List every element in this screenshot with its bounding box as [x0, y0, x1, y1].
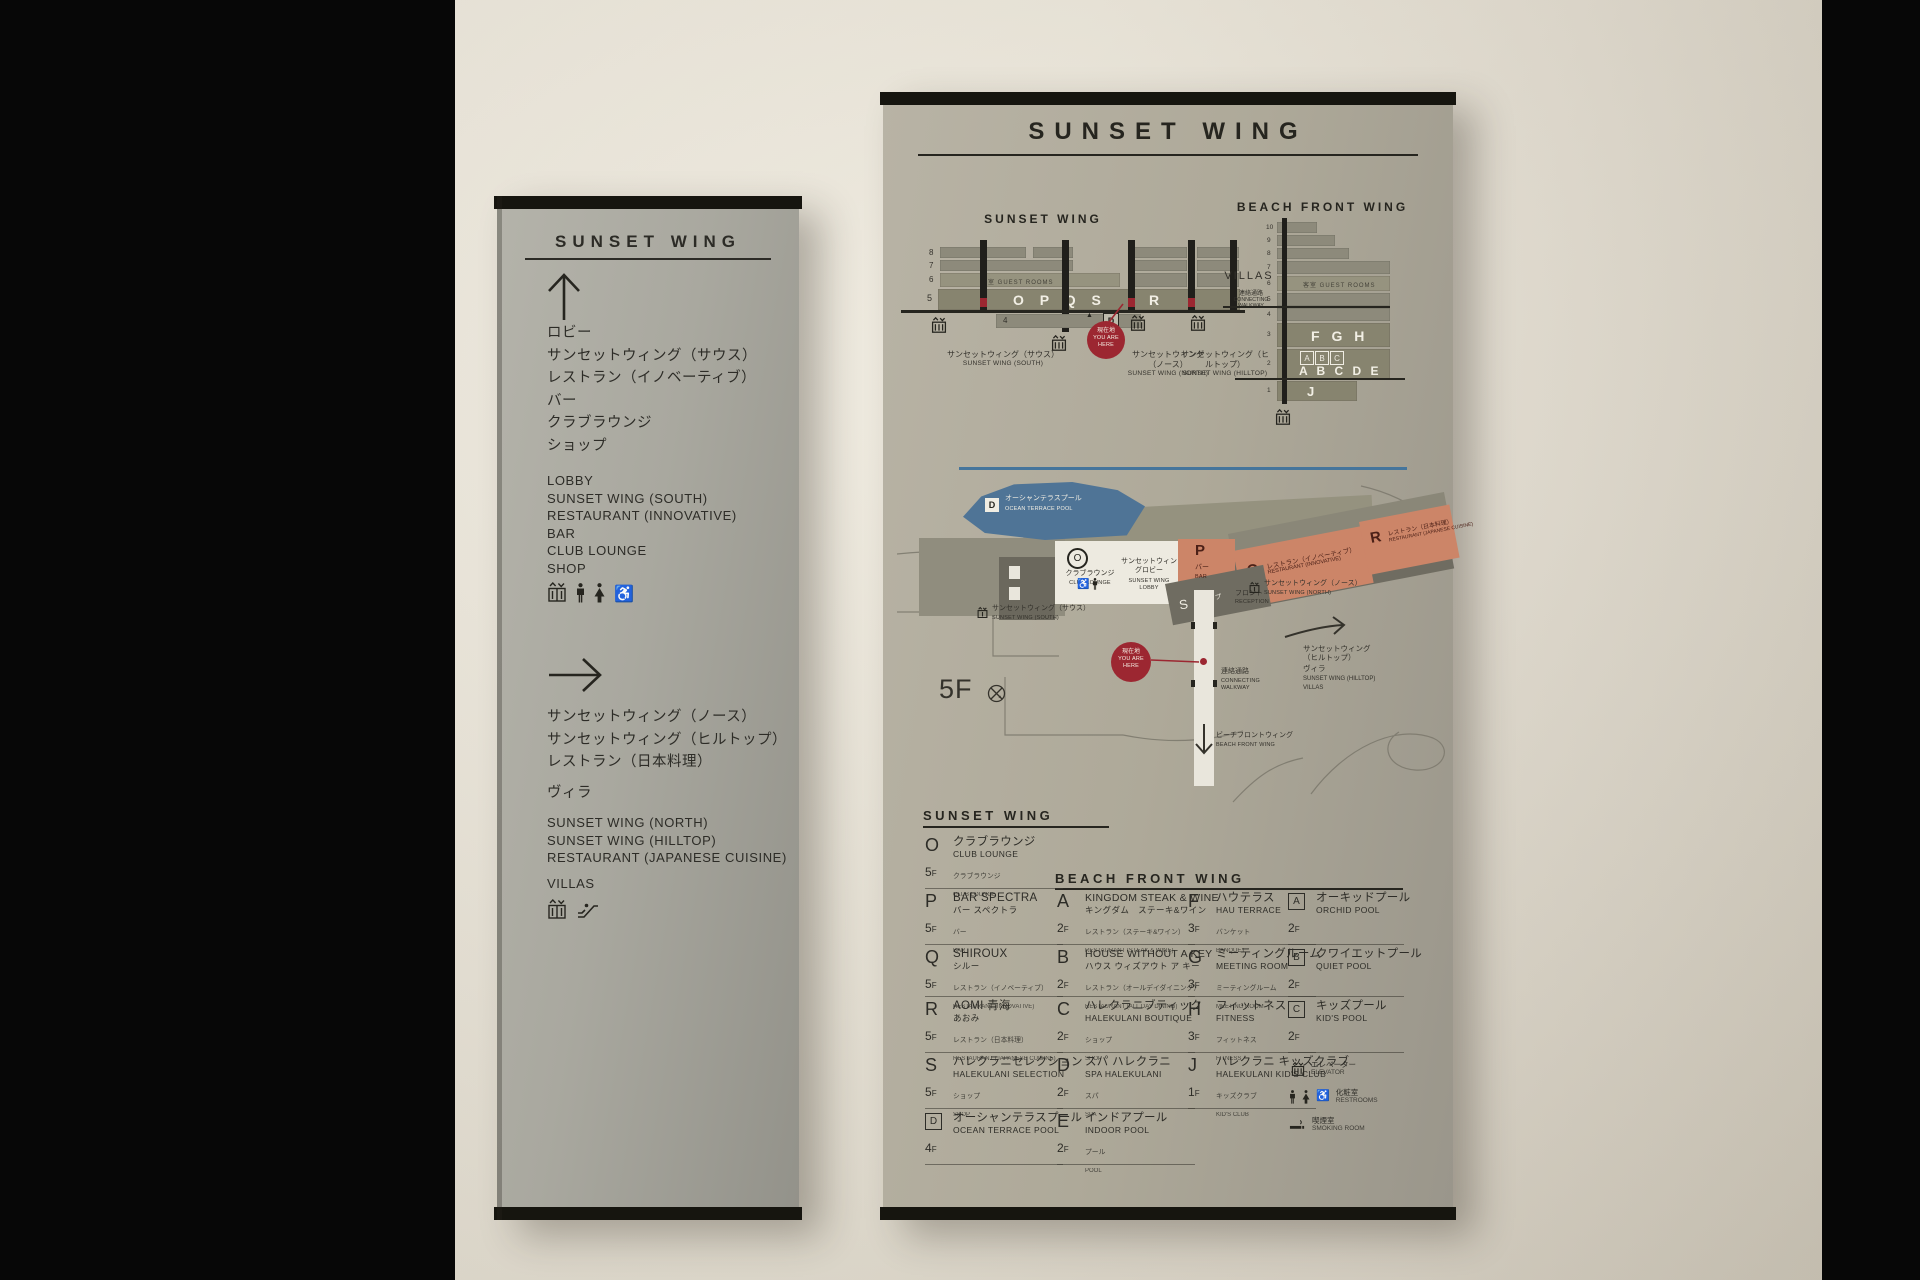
row-divider [925, 1164, 1063, 1165]
list-item: ショップ [547, 435, 757, 458]
panel-bottom-rail [880, 1207, 1456, 1220]
arrow-right-icon [547, 654, 603, 696]
man-icon [576, 583, 585, 603]
list-item: レストラン（日本料理） [547, 751, 787, 774]
row-category-jp: キッズクラブ [1216, 1093, 1257, 1100]
elevation-floor-bar [1129, 273, 1187, 287]
floor-suffix: F [932, 869, 937, 878]
directory-title-rule [923, 826, 1109, 828]
bfw-floor-bar [1277, 308, 1390, 321]
row-floor: 2 [1057, 1085, 1064, 1099]
panel-left-edge [497, 196, 502, 1220]
you-are-here-jp: 現在地 [1111, 642, 1151, 656]
row-subname: KID'S POOL [1316, 1013, 1406, 1024]
you-are-here-en: HERE [1087, 342, 1125, 349]
destination-list-en-right: SUNSET WING (NORTH) SUNSET WING (HILLTOP… [547, 814, 787, 892]
row-category-jp: クラブラウンジ [953, 873, 1001, 880]
row-name: キッズプール [1316, 1000, 1406, 1013]
band-letters-opqs: O P Q S [1013, 292, 1107, 308]
floor-suffix: F [932, 925, 937, 934]
pool-box-c: C [1330, 351, 1344, 365]
elevator-icon [1275, 408, 1291, 426]
elevator-icon [1130, 314, 1146, 332]
walkway-door-mark [1213, 622, 1217, 629]
row-subname: QUIET POOL [1316, 961, 1422, 972]
title-underline [525, 258, 771, 260]
row-letter-boxed: A [1288, 893, 1305, 910]
row-floor: 4 [925, 1141, 932, 1155]
row-category-jp: レストラン（オールデイダイニング） [1085, 985, 1200, 992]
floor-number: 6 [929, 275, 933, 284]
directory-row: A オーキッドプール ORCHID POOL 2F [1288, 892, 1406, 935]
bar-label-en: BAR [1195, 574, 1207, 581]
floor-suffix: F [1295, 925, 1300, 934]
floor-number: 7 [1267, 264, 1271, 271]
label-en: SUNSET WING (SOUTH) [945, 360, 1061, 368]
row-floor: 2 [1057, 921, 1064, 935]
floor-number: 9 [1267, 237, 1271, 244]
list-item: ヴィラ [547, 782, 787, 805]
list-item: レストラン（イノベーティブ） [547, 367, 757, 390]
row-subname: あおみ [953, 1013, 1065, 1024]
row-category-jp: ミーティングルーム [1216, 985, 1277, 992]
legend-smoking: 喫煙室 SMOKING ROOM [1289, 1116, 1365, 1133]
guest-rooms-label: 客室 GUEST ROOMS [981, 277, 1054, 286]
elevator-icon [547, 581, 567, 603]
legend-label-en: SMOKING ROOM [1312, 1125, 1365, 1133]
map-north-jp: サンセットウィング（ノース） [1264, 580, 1362, 589]
floor-suffix: F [932, 1033, 937, 1042]
row-name: ハレクラニブティック [1085, 1000, 1202, 1013]
smoking-icon [1289, 1119, 1306, 1131]
elevator-icon [931, 316, 947, 334]
row-name: BAR SPECTRA [953, 892, 1065, 905]
ground-line [901, 310, 1245, 313]
row-category-jp: ショップ [953, 1093, 980, 1100]
map-hilltop-en: SUNSET WING (HILLTOP) [1303, 676, 1383, 684]
label-sunset-wing-hilltop: サンセットウィング（ヒルトップ） SUNSET WING (HILLTOP) [1179, 350, 1271, 378]
arrow-up-icon [547, 272, 599, 322]
directory-row: D オーシャンテラスプール OCEAN TERRACE POOL 4F [925, 1112, 1065, 1155]
row-floor: 5 [925, 865, 932, 879]
floor-number: 4 [1267, 311, 1271, 318]
elevator-door [1009, 587, 1020, 600]
row-floor: 5 [925, 1085, 932, 1099]
row-floor: 2 [1057, 977, 1064, 991]
reception-label-en: RECEPTION [1235, 599, 1269, 606]
row-name: クラブラウンジ [953, 836, 1065, 849]
row-floor: 2 [1288, 1029, 1295, 1043]
row-letter-boxed: C [1288, 1001, 1305, 1018]
floor-number: 3 [1267, 331, 1271, 338]
amenity-icons-row: ♿ [547, 581, 634, 603]
list-item: SUNSET WING (SOUTH) [547, 490, 737, 508]
floor-suffix: F [932, 1089, 937, 1098]
map-connecting-en: CONNECTING WALKWAY [1221, 678, 1283, 692]
list-item: SHOP [547, 560, 737, 578]
left-panel-title: SUNSET WING [497, 232, 799, 252]
row-floor: 1 [1188, 1085, 1195, 1099]
pool-label-jp: オーシャンテラスプール [1005, 495, 1082, 504]
legend-label-jp: エレベーター [1311, 1060, 1356, 1069]
map-beachfront-en: BEACH FRONT WING [1216, 742, 1275, 749]
destination-list-jp-right: サンセットウィング（ノース） サンセットウィング（ヒルトップ） レストラン（日本… [547, 706, 787, 804]
row-subname: バー スペクトラ [953, 905, 1065, 916]
block-letter-p: P [1195, 542, 1205, 559]
list-item: サンセットウィング（ヒルトップ） [547, 729, 787, 752]
map-beachfront-jp: ビーチフロントウィング [1216, 732, 1293, 741]
floor-number: 8 [929, 248, 933, 257]
panel-bottom-rail [494, 1207, 802, 1220]
row-category-jp: レストラン（ステーキ&ワイン） [1085, 929, 1185, 936]
destination-list-jp-ahead: ロビー サンセットウィング（サウス） レストラン（イノベーティブ） バー クラブ… [547, 322, 757, 457]
row-subname: CLUB LOUNGE [953, 849, 1065, 860]
elevation-floor-bar [1129, 247, 1187, 258]
directory-row: E インドアプール INDOOR POOL 2F プール POOL [1057, 1112, 1197, 1177]
row-name: クワイエットプール [1316, 948, 1422, 961]
elevator-shaft [1282, 218, 1287, 404]
floor-number: 6 [1267, 280, 1271, 287]
row-floor: 2 [1288, 921, 1295, 935]
floor-number: 10 [1266, 224, 1273, 231]
floor-number: 2 [1267, 360, 1271, 367]
pool-box-b: B [1315, 351, 1329, 365]
list-item: ロビー [547, 322, 757, 345]
row-name: AOMI 青海 [953, 1000, 1065, 1013]
compass-icon [987, 684, 1006, 703]
legend-restrooms: ♿ 化粧室 RESTROOMS [1289, 1088, 1378, 1105]
map-hilltop-block: サンセットウィング（ヒルトップ） ヴィラ SUNSET WING (HILLTO… [1303, 644, 1383, 692]
elevator-door [1009, 566, 1020, 579]
legend-label-en: ELEVATOR [1311, 1069, 1356, 1077]
list-item: サンセットウィング（ノース） [547, 706, 787, 729]
row-subname: SPA HALEKULANI [1085, 1069, 1197, 1080]
map-south-en: SUNSET WING (SOUTH) [992, 615, 1059, 622]
you-are-here-en: HERE [1111, 663, 1151, 670]
list-item: VILLAS [547, 875, 787, 893]
elevation-floor-bar [1129, 260, 1187, 271]
right-panel-title: SUNSET WING [883, 118, 1453, 146]
block-letter-s: S [1178, 596, 1189, 612]
walkway-door-mark [1191, 680, 1195, 687]
row-subname: HALEKULANI BOUTIQUE [1085, 1013, 1202, 1024]
row-name: オーキッドプール [1316, 892, 1410, 905]
blue-divider-line [959, 467, 1407, 470]
map-north-en: SUNSET WING (NORTH) [1264, 590, 1331, 597]
walkway-level-line [1223, 306, 1390, 308]
directory-beachfront-title: BEACH FRONT WING [1055, 871, 1245, 886]
floor-indicator-5f: 5F [939, 674, 973, 705]
label-jp: サンセットウィング（ヒルトップ） [1179, 350, 1271, 370]
destination-list-en-ahead: LOBBY SUNSET WING (SOUTH) RESTAURANT (IN… [547, 472, 737, 577]
row-name: スパ ハレクラニ [1085, 1056, 1197, 1069]
map-villa-en: VILLAS [1303, 685, 1383, 693]
panel-top-rail [880, 92, 1456, 105]
map-villa-jp: ヴィラ [1303, 664, 1383, 673]
floor-suffix: F [1064, 1033, 1069, 1042]
map-amenity-icons: ♿ [1077, 578, 1098, 590]
list-item: バー [547, 390, 757, 413]
right-map-panel: SUNSET WING SUNSET WING BEACH FRONT WING… [883, 92, 1453, 1220]
row-floor: 3 [1188, 1029, 1195, 1043]
row-category-en: POOL [1085, 1168, 1102, 1174]
list-item: CLUB LOUNGE [547, 542, 737, 560]
bar-label-jp: バー [1195, 564, 1209, 573]
row-letter-boxed: D [925, 1113, 942, 1130]
floor-suffix: F [1064, 981, 1069, 990]
floor-number: 5 [927, 293, 932, 303]
row-category-jp: スパ [1085, 1093, 1099, 1100]
title-underline [918, 154, 1418, 156]
floor-number: 1 [1267, 387, 1271, 394]
floor-suffix: F [1295, 981, 1300, 990]
man-icon [1092, 578, 1098, 590]
floor-suffix: F [1064, 1145, 1069, 1154]
band-letter-j: J [1307, 384, 1320, 399]
row-name: インドアプール [1085, 1112, 1197, 1125]
you-are-here-jp: 現在地 [1087, 321, 1125, 335]
floor-number: 4 [1003, 316, 1007, 325]
floor-suffix: F [1195, 1033, 1200, 1042]
row-floor: 2 [1057, 1029, 1064, 1043]
legend-label-jp: 化粧室 [1336, 1088, 1378, 1097]
man-icon [1289, 1090, 1296, 1104]
list-item: サンセットウィング（サウス） [547, 345, 757, 368]
band-letters-abcde: A B C D E [1299, 364, 1382, 378]
list-item: SUNSET WING (NORTH) [547, 814, 787, 832]
map-connecting-jp: 連絡通路 [1221, 668, 1249, 677]
row-subname: ORCHID POOL [1316, 905, 1410, 916]
floor-suffix: F [1064, 1089, 1069, 1098]
map-south-jp: サンセットウィング（サウス） [992, 605, 1090, 614]
panel-top-rail [494, 196, 802, 209]
row-subname: シルー [953, 961, 1065, 972]
elevator-icon [977, 606, 988, 619]
row-floor: 2 [1288, 977, 1295, 991]
floor-suffix: F [1064, 925, 1069, 934]
directory-row: B クワイエットプール QUIET POOL 2F [1288, 948, 1406, 991]
bfw-floor-bar [1277, 248, 1349, 259]
directory-title-rule [1055, 888, 1403, 890]
row-name: SHIROUX [953, 948, 1065, 961]
guest-rooms-label: 客室 GUEST ROOMS [1303, 280, 1376, 289]
map-hilltop-jp: サンセットウィング（ヒルトップ） [1303, 644, 1383, 662]
elevation-sunset-wing-title: SUNSET WING [978, 212, 1108, 226]
position-pointer-triangle: ▲ [1086, 312, 1093, 319]
bfw-floor-bar [1277, 261, 1390, 274]
legend-label-en: RESTROOMS [1336, 1097, 1378, 1105]
elevator-icon [1249, 581, 1260, 594]
woman-icon [594, 583, 605, 603]
connecting-walkway-path [1194, 590, 1214, 786]
row-floor: 5 [925, 1029, 932, 1043]
list-item: SUNSET WING (HILLTOP) [547, 832, 787, 850]
elevator-icon [547, 898, 567, 920]
you-are-here-badge: 現在地 YOU ARE HERE [1111, 642, 1151, 682]
row-floor: 3 [1188, 921, 1195, 935]
row-floor: 3 [1188, 977, 1195, 991]
floor-suffix: F [1195, 981, 1200, 990]
lower-level-line [1235, 378, 1405, 380]
woman-icon [1302, 1090, 1310, 1104]
row-floor: 2 [1057, 1141, 1064, 1155]
floor-suffix: F [1195, 1089, 1200, 1098]
list-item: クラブラウンジ [547, 412, 757, 435]
label-jp: サンセットウィング（サウス） [945, 350, 1061, 360]
wheelchair-icon: ♿ [1077, 580, 1089, 590]
floor-number: 8 [1267, 250, 1271, 257]
elevation-beachfront-title: BEACH FRONT WING [1235, 200, 1410, 214]
row-floor: 5 [925, 977, 932, 991]
floor-suffix: F [1295, 1033, 1300, 1042]
floor-number: 5 [1267, 296, 1271, 303]
club-lounge-circle-o: O [1067, 548, 1088, 569]
shaft-red-mark [1188, 298, 1195, 307]
lobby-label-en: SUNSET WING LOBBY [1121, 578, 1177, 592]
list-item: LOBBY [547, 472, 737, 490]
shaft-red-mark [1128, 298, 1135, 307]
pool-box-d: D [985, 498, 999, 512]
row-letter-boxed: B [1288, 949, 1305, 966]
row-floor: 5 [925, 921, 932, 935]
row-subname: INDOOR POOL [1085, 1125, 1197, 1136]
pool-box-a: A [1300, 351, 1314, 365]
pool-label-en: OCEAN TERRACE POOL [1005, 506, 1073, 513]
floor-number: 7 [929, 261, 933, 270]
row-category-jp: レストラン（イノベーティブ） [953, 985, 1048, 992]
left-sign-panel: SUNSET WING ロビー サンセットウィング（サウス） レストラン（イノベ… [497, 196, 799, 1220]
floor-suffix: F [1195, 925, 1200, 934]
label-sunset-wing-south: サンセットウィング（サウス） SUNSET WING (SOUTH) [945, 350, 1061, 368]
row-category-jp: フィットネス [1216, 1037, 1257, 1044]
floor-suffix: F [932, 1145, 937, 1154]
row-category-jp: バンケット [1216, 929, 1250, 936]
list-item: RESTAURANT (INNOVATIVE) [547, 507, 737, 525]
band-letters-fgh: F G H [1311, 328, 1368, 344]
legend-elevator: エレベーター ELEVATOR [1291, 1060, 1356, 1077]
wheelchair-icon: ♿ [1316, 1091, 1330, 1102]
label-en: SUNSET WING (HILLTOP) [1179, 370, 1271, 378]
bfw-floor-bar [1277, 293, 1390, 306]
elevator-icon [1291, 1061, 1305, 1077]
list-item: RESTAURANT (JAPANESE CUISINE) [547, 849, 787, 867]
elevation-floor-bar [940, 260, 1073, 271]
current-position-dot [1200, 658, 1207, 665]
block-letter-r: R [1369, 528, 1383, 547]
lobby-label-jp: サンセットウィングロビー [1121, 558, 1177, 575]
shaft-red-mark [980, 298, 987, 307]
walkway-door-mark [1213, 680, 1217, 687]
row-category-jp: バー [953, 929, 967, 936]
amenity-icons-row [547, 898, 600, 920]
row-category-en: KID'S CLUB [1216, 1112, 1249, 1118]
walkway-door-mark [1191, 622, 1195, 629]
row-category-jp: レストラン（日本料理） [953, 1037, 1028, 1044]
directory-row: C キッズプール KID'S POOL 2F [1288, 1000, 1406, 1043]
elevator-icon [1190, 314, 1206, 332]
you-are-here-badge: 現在地 YOU ARE HERE [1087, 321, 1125, 359]
legend-label-jp: 喫煙室 [1312, 1116, 1365, 1125]
escalator-icon [576, 901, 600, 920]
floor-suffix: F [932, 981, 937, 990]
row-category-jp: ショップ [1085, 1037, 1112, 1044]
band-letter-r: R [1149, 292, 1165, 308]
list-item: BAR [547, 525, 737, 543]
row-category-jp: プール [1085, 1149, 1105, 1156]
wheelchair-icon: ♿ [614, 587, 634, 603]
